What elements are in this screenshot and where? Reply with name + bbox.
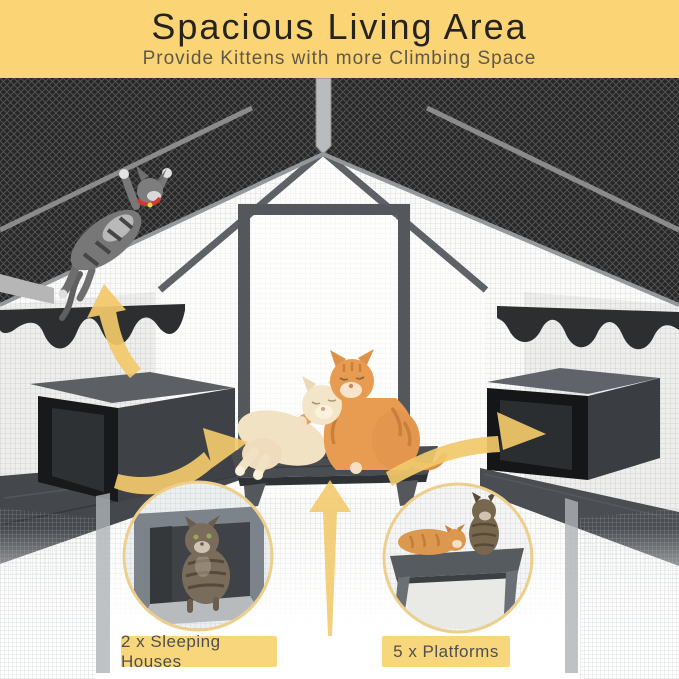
callout-sleeping-houses: 2 x Sleeping Houses <box>121 636 277 667</box>
banner: Spacious Living Area Provide Kittens wit… <box>0 0 679 78</box>
callout-platforms: 5 x Platforms <box>382 636 510 667</box>
inset-sleeping-house-photo <box>124 482 272 630</box>
inset-platforms-photo <box>384 484 532 632</box>
catio-photo <box>0 78 679 679</box>
callout-platforms-label: 5 x Platforms <box>393 642 499 662</box>
callout-sleeping-houses-label: 2 x Sleeping Houses <box>121 632 277 672</box>
page-title: Spacious Living Area <box>0 7 679 47</box>
page-subtitle: Provide Kittens with more Climbing Space <box>0 48 679 69</box>
product-image: Spacious Living Area Provide Kittens wit… <box>0 0 679 679</box>
